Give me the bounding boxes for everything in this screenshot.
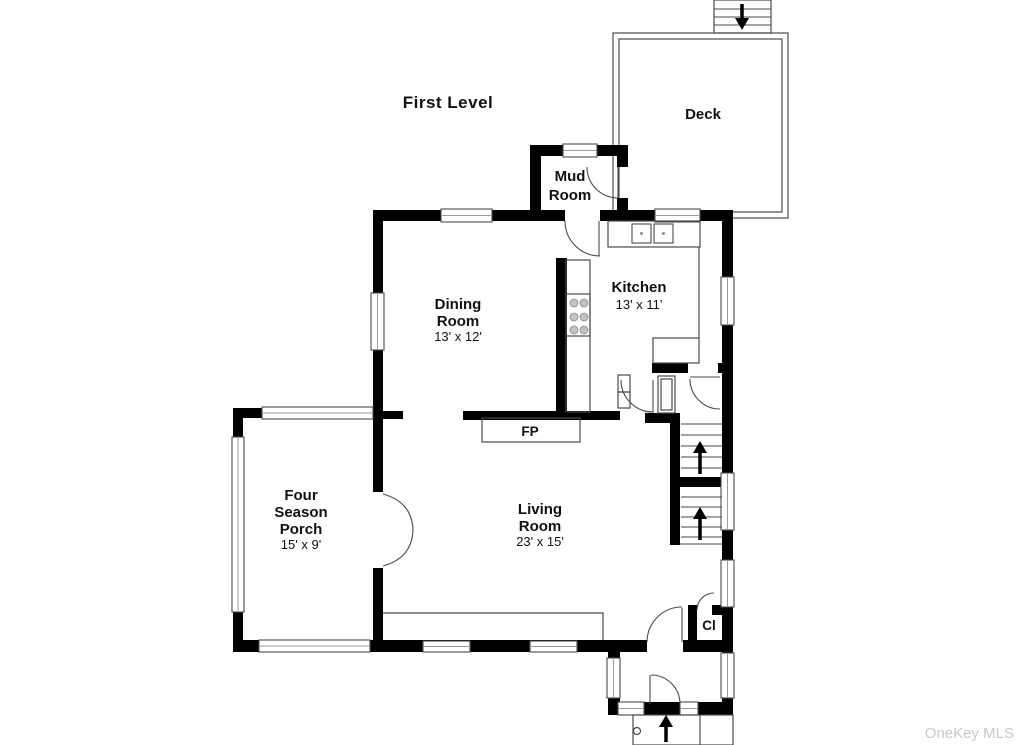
four-season-porch-label: Four Season Porch 15' x 9': [274, 487, 327, 552]
window: [441, 209, 492, 222]
window: [423, 641, 470, 652]
floor-plan: Deck: [0, 0, 1024, 745]
living-room-name-line2: Room: [519, 518, 562, 535]
living-vestibule-door: [647, 607, 682, 642]
porch-post: [634, 728, 641, 735]
fireplace: FP: [482, 418, 580, 442]
living-room-label: Living Room 23' x 15': [516, 501, 564, 549]
french-doors: [383, 494, 413, 566]
window: [232, 437, 244, 612]
page-title: First Level: [403, 93, 494, 112]
kitchen-hall-door: [690, 377, 720, 409]
window: [721, 560, 734, 607]
closet-label: Cl: [702, 618, 716, 633]
dining-room-label: Dining Room 13' x 12': [434, 296, 482, 344]
front-steps-outline: [633, 715, 733, 745]
window: [530, 641, 577, 652]
window: [655, 209, 700, 222]
porch-name-line3: Porch: [280, 521, 323, 538]
closet-door: [697, 593, 714, 610]
window: [721, 473, 734, 530]
pantry-shelf: [618, 375, 630, 392]
kitchen-label: Kitchen 13' x 11': [611, 279, 666, 312]
stairs-up-arrow-icon: [693, 507, 707, 540]
mud-room-label: Mud Room: [549, 168, 592, 204]
deck-inner-wall: [619, 39, 782, 212]
front-steps: [633, 715, 733, 745]
deck-stairs: [714, 0, 771, 33]
dining-room-name-line1: Dining: [435, 296, 482, 313]
deck: Deck: [613, 33, 788, 218]
watermark: OneKey MLS: [925, 725, 1014, 742]
deck-outer-wall: [613, 33, 788, 218]
deck-label: Deck: [685, 106, 722, 123]
window: [618, 702, 644, 715]
window: [721, 277, 734, 325]
fireplace-label: FP: [521, 424, 538, 439]
window: [607, 658, 620, 698]
living-room-dims: 23' x 15': [516, 534, 564, 549]
stove: [566, 294, 590, 336]
mud-room-kitchen-door: [565, 221, 600, 256]
window: [262, 407, 373, 419]
dining-room-dims: 13' x 12': [434, 329, 482, 344]
porch-name-line1: Four: [284, 487, 317, 504]
window: [721, 653, 734, 698]
window: [563, 144, 597, 157]
overhang-line: [383, 613, 603, 640]
mud-room-name-line2: Room: [549, 187, 592, 204]
kitchen-fixtures: [566, 221, 700, 413]
front-door: [650, 675, 680, 704]
window: [259, 640, 370, 652]
kitchen-cabinet: [653, 338, 699, 363]
porch-name-line2: Season: [274, 504, 327, 521]
kitchen-name: Kitchen: [611, 279, 666, 296]
dining-room-name-line2: Room: [437, 313, 480, 330]
window: [371, 293, 384, 350]
floor-plan-page: Deck: [0, 0, 1024, 745]
entry-up-arrow-icon: [659, 715, 673, 742]
kitchen-sink: [632, 224, 673, 243]
living-room-name-line1: Living: [518, 501, 562, 518]
hall-closet-door: [661, 379, 672, 410]
porch-dims: 15' x 9': [281, 537, 321, 552]
kitchen-dims: 13' x 11': [616, 297, 663, 312]
mud-room-name-line1: Mud: [555, 168, 586, 185]
window: [680, 702, 698, 715]
